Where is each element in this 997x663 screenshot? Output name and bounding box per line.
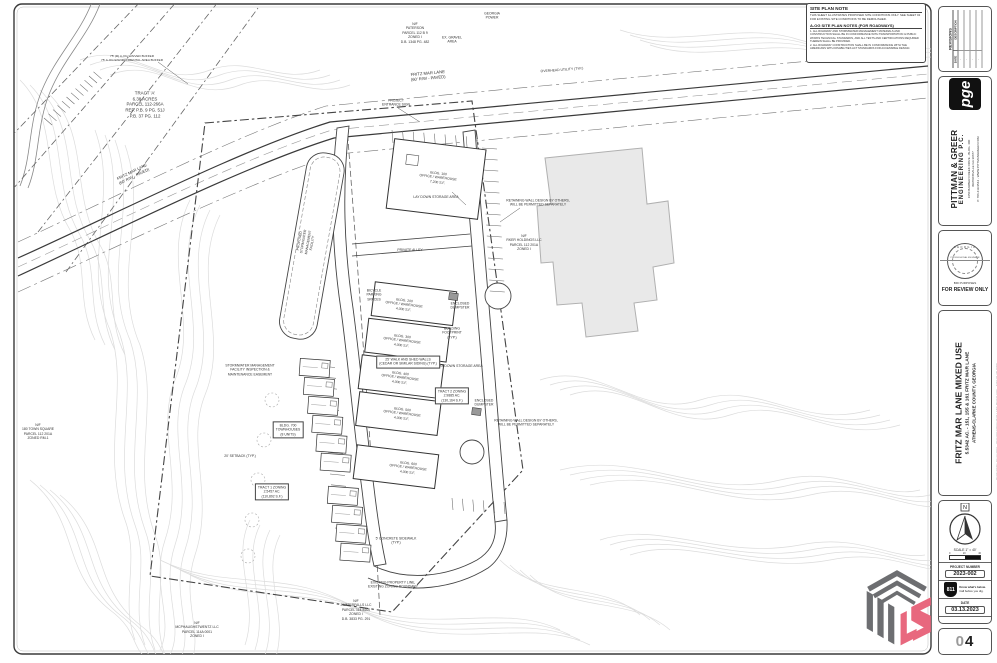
seal-purpose: BID PURPOSES (954, 281, 977, 285)
project-panel: FRITZ MAR LANE MIXED USE 5.5342 AC. - 15… (938, 310, 992, 496)
firm-panel: PITTMAN & GREER ENGINEERING P.C. 1650 BA… (938, 76, 992, 226)
notes-title: SITE PLAN NOTE (810, 6, 922, 13)
811-logo: 811 (944, 582, 957, 597)
project-number-value: 2023-002 (945, 570, 985, 578)
date-value: 03.13.2023 (945, 606, 985, 614)
notes-body: THIS SHEET ILLUSTRATES PROPOSED SITE CON… (810, 14, 922, 21)
seal-state: GEORGIA (948, 246, 982, 249)
project-number-section: PROJECT NUMBER 2023-002 (939, 563, 991, 581)
sheet-title-section: SITE PLAN (939, 617, 991, 624)
revisions-date-col: DATE (954, 50, 958, 68)
for-review-only: FOR REVIEW ONLY (942, 287, 989, 293)
notes-item: 1. ALL ROADWAY AND STORMWATER MANAGEMENT… (810, 30, 922, 43)
project-number-label: PROJECT NUMBER (941, 565, 989, 569)
dumpster (472, 408, 482, 416)
north-arrow-icon: N (945, 503, 985, 547)
watermark-ls-pink (901, 597, 931, 645)
scale-tick: 20 (963, 552, 966, 555)
firm-name-2: ENGINEERING P.C. (959, 114, 965, 224)
firm-address-3: P. 706.419.9544 - WWW.PITTMANGREER.COM (976, 114, 980, 224)
building-100 (386, 139, 486, 220)
watermark-logo (856, 554, 938, 660)
project-title: FRITZ MAR LANE MIXED USE (954, 313, 964, 493)
call-811-section: 811 Know what's below. Call before you d… (939, 581, 991, 599)
notes-subtitle: A-OG SITE PLAN NOTES (FOR ROADWAYS) (810, 23, 922, 29)
site-plan-note-box: SITE PLAN NOTE THIS SHEET ILLUSTRATES PR… (806, 3, 926, 63)
site-plan-drawing (0, 0, 997, 663)
pe-seal: GEORGIA PROFESSIONAL ENGINEER (947, 243, 983, 279)
firm-name: PITTMAN & GREER (950, 114, 959, 224)
revisions-panel: REVISIONS DATE DESCRIPTION - - - - (938, 6, 992, 72)
scale-tick: 40 (978, 552, 981, 555)
scale-bar (949, 555, 981, 560)
date-section: DATE 03.13.2023 (939, 599, 991, 617)
dumpster (449, 293, 459, 301)
info-panel: N SCALE 1" = 40' 0 20 40 PROJECT NUMBER … (938, 500, 992, 624)
sheet-number: 04 (956, 633, 975, 650)
revision-row: - (977, 10, 983, 68)
svg-text:N: N (963, 505, 967, 511)
seal-panel: GEORGIA PROFESSIONAL ENGINEER BID PURPOS… (938, 230, 992, 306)
sheet-number-panel: 04 (938, 628, 992, 655)
scale-tick: 0 (949, 552, 950, 555)
north-arrow-section: N SCALE 1" = 40' 0 20 40 (939, 501, 991, 563)
revisions-desc-col: DESCRIPTION (954, 10, 958, 50)
date-label: DATE (941, 601, 989, 605)
sheet-title: SITE PLAN (941, 619, 989, 624)
notes-item: 2. ALL ROADWAY CONSTRUCTION SHALL BE IN … (810, 44, 922, 50)
811-tagline-2: Call before you dig. (959, 590, 985, 593)
pge-logo: pge (949, 78, 981, 110)
project-county: ATHENS-CLARKE COUNTY, GEORGIA (972, 313, 977, 493)
project-address: 5.5342 AC. - 151, 155 & 161 FRITZ MAR LA… (966, 313, 971, 493)
